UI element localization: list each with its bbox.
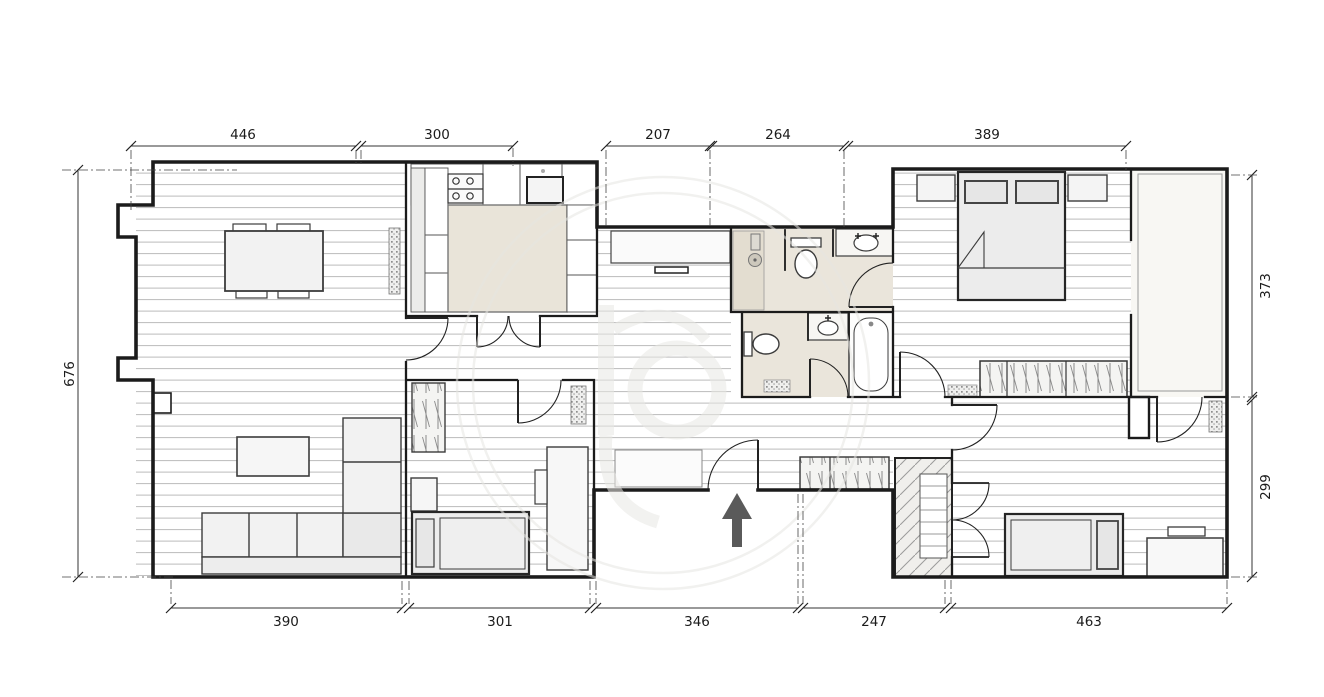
door-mat-icon [948,385,977,396]
dimension-label: 389 [974,127,1000,143]
bathtub-icon [849,312,893,397]
dimension-label: 676 [62,361,78,387]
pillow-icon [1016,181,1058,203]
tv-sideboard-icon [237,437,309,476]
shelf-icon [1168,527,1205,536]
corridor-floor-2 [893,397,952,458]
wall-pier [1129,397,1149,438]
washbasin-icon [836,229,893,256]
double-bed-icon [958,172,1065,300]
chair-icon [535,470,547,504]
nightstand-icon [917,175,955,201]
radiator-icon [1209,401,1222,432]
closet-icon [895,458,952,577]
pillow-icon [1097,521,1118,569]
dimension-label: 390 [273,614,299,630]
wall-pilaster [153,393,171,413]
toilet-icon [744,332,779,356]
dimension-label: 299 [1258,474,1274,500]
desk-icon [1147,538,1223,577]
wardrobe-icon [980,361,1127,397]
single-bed-icon [1005,514,1123,576]
hall-strip-floor [406,316,594,380]
kitchen-cabinet-right [567,205,597,312]
entry-console [615,450,702,487]
hall-shelf [655,267,688,273]
dimension-label: 300 [424,127,450,143]
corridor-wardrobe-icon [800,457,889,489]
kitchen-island [448,205,567,312]
wardrobe-icon [412,383,445,452]
stove-icon [448,174,483,203]
kitchen [411,164,597,312]
nightstand-icon [411,478,437,511]
pillow-icon [965,181,1007,203]
bath-mat-icon [764,380,790,392]
floor-plan-drawing: 446 300 207 264 389 390 301 346 247 463 … [0,0,1324,697]
shower-icon [733,231,764,310]
floor-plan-page: 446 300 207 264 389 390 301 346 247 463 … [0,0,1324,697]
entrance-arrow-icon [722,493,752,547]
hall-cabinet [611,231,730,263]
dimension-label: 463 [1076,614,1102,630]
dimension-label: 301 [487,614,513,630]
dimension-label: 446 [230,127,256,143]
dimension-label: 207 [645,127,671,143]
kitchen-cabinet-strip [411,168,425,312]
radiator-icon [571,386,586,424]
nightstand-icon [1068,175,1107,201]
dimension-label: 346 [684,614,710,630]
dining-table-icon [225,224,323,298]
terrace-floor [1131,169,1227,397]
dimension-label: 264 [765,127,791,143]
radiator-icon [389,228,400,294]
dimension-label: 373 [1258,273,1274,299]
desk-icon [547,447,588,570]
dimension-label: 247 [861,614,887,630]
